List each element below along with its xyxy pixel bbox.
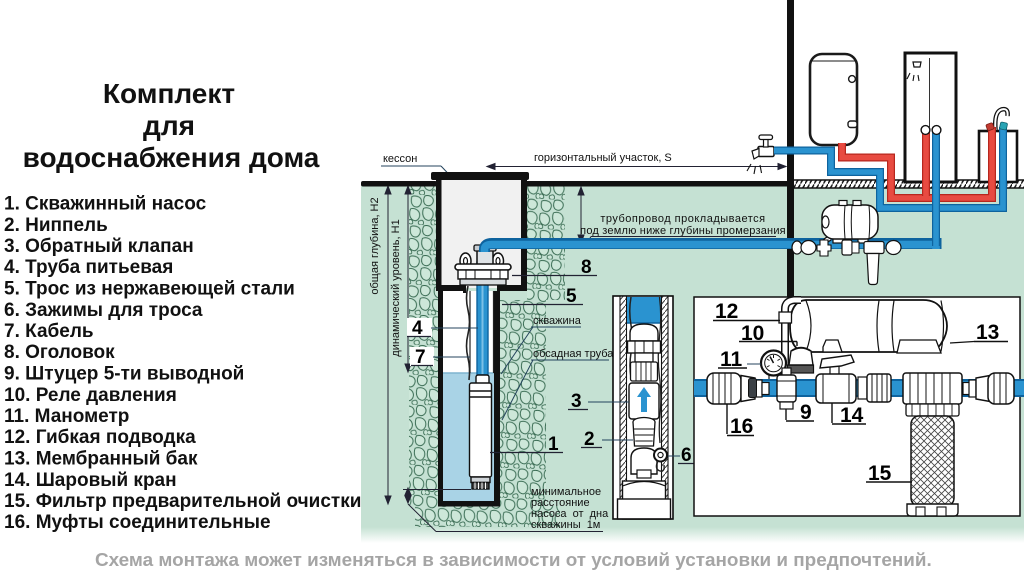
svg-text:13: 13 [976, 321, 999, 344]
svg-text:8. Оголовок: 8. Оголовок [4, 342, 115, 363]
svg-text:2. Ниппель: 2. Ниппель [4, 215, 108, 236]
svg-text:1: 1 [548, 434, 559, 455]
svg-text:горизонтальный участок, S: горизонтальный участок, S [534, 152, 672, 164]
svg-text:12: 12 [715, 300, 738, 323]
svg-text:3. Обратный клапан: 3. Обратный клапан [4, 236, 194, 257]
svg-text:5: 5 [566, 286, 577, 307]
svg-text:10. Реле давления: 10. Реле давления [4, 385, 177, 406]
svg-text:13. Мембранный бак: 13. Мембранный бак [4, 449, 198, 470]
svg-text:8: 8 [581, 257, 592, 278]
svg-text:водоснабжения дома: водоснабжения дома [23, 142, 320, 173]
svg-text:2: 2 [584, 429, 595, 450]
svg-text:15. Фильтр предварительной очи: 15. Фильтр предварительной очистки [4, 491, 361, 512]
svg-text:14. Шаровый кран: 14. Шаровый кран [4, 470, 177, 491]
svg-text:Комплект: Комплект [103, 78, 235, 109]
svg-text:общая глубина, Н2: общая глубина, Н2 [369, 197, 381, 294]
svg-text:Схема монтажа может изменяться: Схема монтажа может изменяться в зависим… [95, 550, 932, 571]
svg-text:3: 3 [571, 391, 582, 412]
svg-text:16: 16 [730, 415, 753, 438]
svg-text:трубопровод прокладывается: трубопровод прокладывается [600, 213, 765, 225]
svg-text:9. Штуцер 5-ти выводной: 9. Штуцер 5-ти выводной [4, 364, 244, 385]
svg-text:11. Манометр: 11. Манометр [4, 406, 129, 427]
svg-text:6: 6 [681, 445, 692, 466]
svg-text:скважины 1м: скважины 1м [531, 519, 600, 531]
svg-text:4: 4 [412, 318, 423, 339]
svg-text:6. Зажимы для троса: 6. Зажимы для троса [4, 300, 203, 321]
svg-text:1. Скважинный насос: 1. Скважинный насос [4, 194, 207, 215]
svg-text:кессон: кессон [383, 153, 417, 165]
svg-text:16. Муфты соединительные: 16. Муфты соединительные [4, 512, 271, 533]
svg-text:4. Труба питьевая: 4. Труба питьевая [4, 257, 173, 278]
svg-text:7: 7 [415, 347, 426, 368]
svg-text:12. Гибкая подводка: 12. Гибкая подводка [4, 427, 196, 448]
svg-text:7. Кабель: 7. Кабель [4, 321, 94, 342]
svg-text:для: для [143, 110, 195, 141]
svg-text:5. Трос из нержавеющей стали: 5. Трос из нержавеющей стали [4, 279, 295, 300]
svg-text:под землю ниже глубины промерз: под землю ниже глубины промерзания [580, 225, 786, 237]
svg-text:скважина: скважина [533, 315, 582, 327]
svg-text:обсадная труба: обсадная труба [533, 348, 614, 360]
svg-text:динамический уровень, Н1: динамический уровень, Н1 [390, 219, 402, 356]
